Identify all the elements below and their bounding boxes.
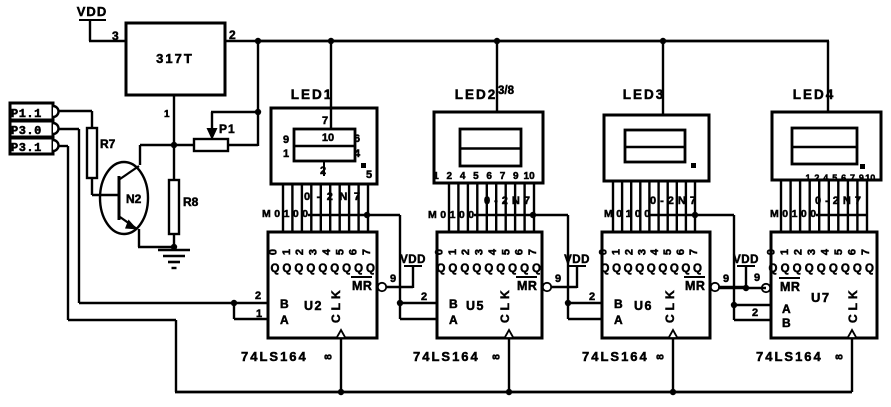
svg-text:3: 3 bbox=[112, 29, 119, 43]
svg-text:CLK: CLK bbox=[329, 286, 343, 323]
svg-text:Q: Q bbox=[853, 263, 862, 275]
svg-text:P1: P1 bbox=[219, 122, 236, 136]
svg-text:Q: Q bbox=[647, 263, 656, 275]
svg-text:8: 8 bbox=[324, 354, 335, 360]
svg-text:6: 6 bbox=[514, 249, 526, 255]
svg-text:M0100: M0100 bbox=[262, 208, 312, 220]
svg-text:4: 4 bbox=[487, 248, 499, 255]
svg-text:3: 3 bbox=[474, 249, 486, 255]
svg-text:6: 6 bbox=[486, 171, 492, 182]
svg-text:0: 0 bbox=[434, 249, 446, 255]
svg-text:B: B bbox=[782, 316, 791, 330]
svg-text:Q: Q bbox=[781, 263, 790, 275]
svg-text:74LS164: 74LS164 bbox=[413, 349, 480, 364]
svg-text:2: 2 bbox=[752, 307, 758, 319]
svg-text:0-2N7: 0-2N7 bbox=[815, 195, 865, 207]
svg-text:Q: Q bbox=[508, 263, 517, 275]
svg-text:A: A bbox=[614, 313, 623, 327]
svg-text:2: 2 bbox=[447, 171, 453, 182]
svg-text:P1.1: P1.1 bbox=[11, 107, 42, 121]
svg-text:8: 8 bbox=[492, 354, 503, 360]
svg-text:2: 2 bbox=[623, 249, 635, 255]
svg-text:M0100: M0100 bbox=[770, 208, 820, 220]
svg-text:7: 7 bbox=[361, 249, 373, 255]
svg-text:P3.0: P3.0 bbox=[11, 124, 42, 138]
svg-text:1: 1 bbox=[779, 249, 791, 255]
svg-text:VDD: VDD bbox=[733, 254, 759, 266]
svg-text:U7: U7 bbox=[811, 290, 831, 305]
svg-text:Q: Q bbox=[496, 263, 505, 275]
svg-text:1: 1 bbox=[256, 308, 262, 320]
svg-text:Q: Q bbox=[294, 263, 303, 275]
svg-text:Q: Q bbox=[601, 263, 610, 275]
svg-text:1: 1 bbox=[164, 109, 170, 120]
svg-text:10: 10 bbox=[322, 132, 334, 144]
svg-text:LED3: LED3 bbox=[623, 87, 666, 102]
svg-text:Q: Q bbox=[635, 263, 644, 275]
svg-text:6: 6 bbox=[841, 173, 846, 183]
svg-text:Q: Q bbox=[693, 263, 702, 275]
svg-text:Q: Q bbox=[817, 263, 826, 275]
svg-text:Q: Q bbox=[612, 263, 621, 275]
svg-text:317T: 317T bbox=[156, 51, 194, 66]
svg-text:7: 7 bbox=[688, 249, 700, 255]
svg-text:4: 4 bbox=[649, 248, 661, 255]
svg-text:U6: U6 bbox=[634, 299, 653, 313]
svg-text:8: 8 bbox=[656, 354, 667, 360]
svg-text:1: 1 bbox=[283, 148, 289, 160]
svg-text:4: 4 bbox=[321, 248, 333, 255]
svg-text:9: 9 bbox=[555, 273, 561, 285]
svg-text:7: 7 bbox=[860, 249, 872, 255]
svg-text:6: 6 bbox=[354, 133, 360, 145]
svg-text:A: A bbox=[449, 313, 458, 327]
svg-text:B: B bbox=[280, 297, 289, 311]
svg-text:5: 5 bbox=[366, 169, 372, 181]
svg-text:Q: Q bbox=[769, 263, 778, 275]
svg-text:B: B bbox=[614, 297, 623, 311]
svg-text:Q: Q bbox=[318, 263, 327, 275]
svg-text:MR: MR bbox=[517, 279, 537, 293]
svg-text:Q: Q bbox=[282, 263, 291, 275]
svg-text:9: 9 bbox=[859, 173, 864, 183]
svg-text:3: 3 bbox=[308, 249, 320, 255]
svg-text:VDD: VDD bbox=[400, 254, 426, 266]
svg-text:5: 5 bbox=[473, 171, 479, 182]
svg-text:9: 9 bbox=[723, 273, 729, 285]
svg-text:Q: Q bbox=[865, 263, 874, 275]
svg-text:Q: Q bbox=[841, 263, 850, 275]
svg-text:CLK: CLK bbox=[498, 286, 512, 323]
svg-text:Q: Q bbox=[658, 263, 667, 275]
svg-text:9: 9 bbox=[513, 171, 519, 182]
svg-text:0: 0 bbox=[598, 249, 610, 255]
svg-text:10: 10 bbox=[524, 171, 536, 182]
svg-text:2: 2 bbox=[460, 249, 472, 255]
svg-text:VDD: VDD bbox=[77, 4, 107, 19]
svg-text:0-2N7: 0-2N7 bbox=[650, 195, 700, 207]
svg-text:4: 4 bbox=[820, 248, 832, 255]
svg-text:N2: N2 bbox=[126, 192, 142, 206]
svg-text:9: 9 bbox=[283, 134, 289, 146]
svg-text:0-2N7: 0-2N7 bbox=[304, 191, 366, 203]
svg-text:Q: Q bbox=[472, 263, 481, 275]
svg-text:0: 0 bbox=[268, 249, 280, 255]
svg-text:6: 6 bbox=[348, 249, 360, 255]
svg-text:5: 5 bbox=[832, 173, 837, 183]
svg-text:0: 0 bbox=[766, 249, 778, 255]
svg-text:R8: R8 bbox=[183, 195, 199, 209]
svg-text:LED1: LED1 bbox=[291, 87, 334, 102]
svg-text:2: 2 bbox=[294, 249, 306, 255]
svg-text:5: 5 bbox=[662, 249, 674, 255]
svg-text:4: 4 bbox=[460, 171, 466, 182]
svg-text:74LS164: 74LS164 bbox=[582, 349, 649, 364]
svg-text:Q: Q bbox=[342, 263, 351, 275]
svg-text:7: 7 bbox=[322, 115, 328, 127]
svg-text:4: 4 bbox=[354, 148, 361, 160]
svg-text:9: 9 bbox=[390, 273, 396, 285]
svg-text:MR: MR bbox=[780, 280, 800, 294]
svg-text:Q: Q bbox=[437, 263, 446, 275]
svg-text:2: 2 bbox=[255, 290, 261, 302]
svg-text:2: 2 bbox=[793, 249, 805, 255]
svg-text:Q: Q bbox=[532, 263, 541, 275]
svg-text:U5: U5 bbox=[466, 299, 485, 313]
svg-text:U2: U2 bbox=[304, 299, 323, 313]
svg-text:5: 5 bbox=[833, 249, 845, 255]
svg-text:Q: Q bbox=[484, 263, 493, 275]
svg-text:7: 7 bbox=[850, 173, 855, 183]
svg-text:7: 7 bbox=[500, 171, 506, 182]
svg-text:5: 5 bbox=[334, 249, 346, 255]
svg-text:A: A bbox=[782, 302, 791, 316]
svg-text:74LS164: 74LS164 bbox=[241, 349, 308, 364]
svg-text:MR: MR bbox=[352, 279, 372, 293]
svg-text:CLK: CLK bbox=[663, 286, 677, 323]
svg-text:Q: Q bbox=[271, 263, 280, 275]
svg-text:Q: Q bbox=[520, 263, 529, 275]
svg-text:Q: Q bbox=[306, 263, 315, 275]
svg-text:Q: Q bbox=[624, 263, 633, 275]
svg-text:M0100: M0100 bbox=[604, 208, 654, 220]
svg-text:R7: R7 bbox=[100, 137, 116, 151]
svg-text:Q: Q bbox=[793, 263, 802, 275]
svg-text:6: 6 bbox=[847, 249, 859, 255]
svg-text:3/8: 3/8 bbox=[498, 85, 515, 97]
svg-text:B: B bbox=[449, 297, 458, 311]
svg-text:7: 7 bbox=[527, 249, 539, 255]
svg-text:Q: Q bbox=[670, 263, 679, 275]
svg-text:Q: Q bbox=[805, 263, 814, 275]
svg-text:2: 2 bbox=[589, 291, 595, 303]
svg-text:1: 1 bbox=[281, 249, 293, 255]
svg-text:6: 6 bbox=[675, 249, 687, 255]
svg-text:0-2N7: 0-2N7 bbox=[484, 195, 534, 207]
svg-text:3: 3 bbox=[636, 249, 648, 255]
svg-text:5: 5 bbox=[500, 249, 512, 255]
svg-text:Q: Q bbox=[460, 263, 469, 275]
svg-text:A: A bbox=[280, 313, 289, 327]
svg-text:P3.1: P3.1 bbox=[11, 141, 42, 155]
svg-text:CLK: CLK bbox=[846, 286, 860, 323]
svg-text:Q: Q bbox=[366, 263, 375, 275]
svg-text:9: 9 bbox=[754, 272, 760, 284]
svg-text:1: 1 bbox=[610, 249, 622, 255]
svg-text:Q: Q bbox=[681, 263, 690, 275]
svg-text:Q: Q bbox=[829, 263, 838, 275]
svg-text:M0100: M0100 bbox=[428, 209, 478, 221]
svg-text:4: 4 bbox=[823, 173, 828, 183]
svg-text:LED2: LED2 bbox=[455, 87, 498, 102]
svg-text:1: 1 bbox=[433, 171, 439, 182]
svg-text:Q: Q bbox=[448, 263, 457, 275]
svg-text:MR: MR bbox=[685, 279, 705, 293]
svg-text:3: 3 bbox=[806, 249, 818, 255]
svg-text:8: 8 bbox=[835, 354, 846, 360]
svg-text:Q: Q bbox=[354, 263, 363, 275]
svg-text:1: 1 bbox=[447, 249, 459, 255]
svg-text:2: 2 bbox=[421, 291, 427, 303]
svg-text:74LS164: 74LS164 bbox=[756, 349, 823, 364]
svg-text:Q: Q bbox=[330, 263, 339, 275]
